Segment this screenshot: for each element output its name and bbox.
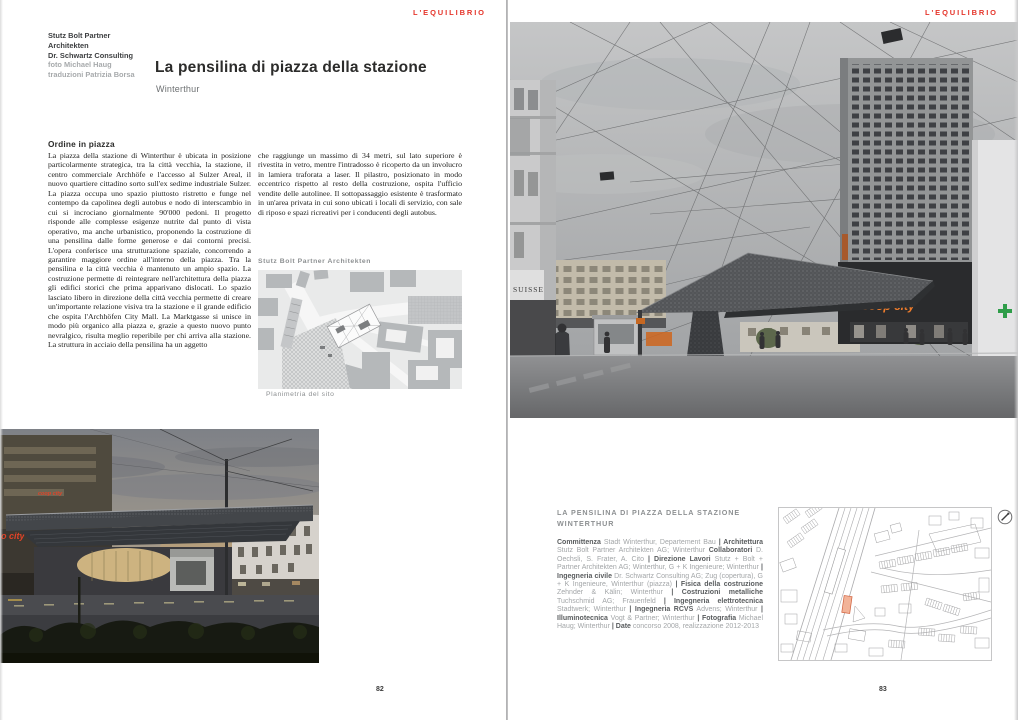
page-number-right: 83 — [879, 686, 887, 693]
magazine-title-left: L'EQUILIBRIO — [413, 8, 486, 17]
photo-station-square: SUISSE coop city — [510, 22, 1018, 418]
article-title: La pensilina di piazza della stazione — [155, 59, 427, 77]
article-subtitle: Winterthur — [156, 84, 200, 94]
magazine-title-right: L'EQUILIBRIO — [925, 8, 998, 17]
location-map-drawing — [779, 508, 991, 660]
section-heading: Ordine in piazza — [48, 139, 115, 149]
location-map-figure — [778, 507, 992, 661]
right-page: L'EQUILIBRIO — [508, 0, 1018, 720]
project-credits: Committenza Stadt Winterthur, Departemen… — [557, 539, 763, 631]
photo-canopy-dusk: coop city o city — [0, 429, 319, 663]
body-column-2: che raggiunge un massimo di 34 metri, su… — [258, 151, 462, 217]
site-plan-figure — [258, 270, 462, 389]
site-plan-drawing — [258, 270, 462, 389]
compass-icon — [997, 509, 1013, 525]
left-page: L'EQUILIBRIO Stutz Bolt Partner Architek… — [0, 0, 507, 720]
project-title: LA PENSILINA DI PIAZZA DELLA STAZIONE WI… — [557, 508, 777, 529]
body-column-1: La piazza della stazione di Winterthur è… — [48, 151, 251, 350]
coop-city-sign-small: coop city — [38, 491, 63, 497]
page-edge-right — [1014, 0, 1018, 720]
magazine-spread: { "magazine": { "name": "L'EQUILIBRIO", … — [0, 0, 1018, 720]
photo-station-glow — [77, 548, 173, 582]
page-number-left: 82 — [376, 686, 384, 693]
byline-line: Stutz Bolt Partner — [48, 31, 188, 41]
page-edge-left — [0, 0, 3, 720]
project-title-line1: LA PENSILINA DI PIAZZA DELLA STAZIONE — [557, 508, 777, 519]
byline-line: Architekten — [48, 41, 188, 51]
site-plan-credit: Stutz Bolt Partner Architekten — [258, 258, 371, 265]
project-title-line2: WINTERTHUR — [557, 519, 777, 530]
site-plan-caption: Planimetria del sito — [266, 391, 334, 398]
page-gutter — [506, 0, 508, 720]
